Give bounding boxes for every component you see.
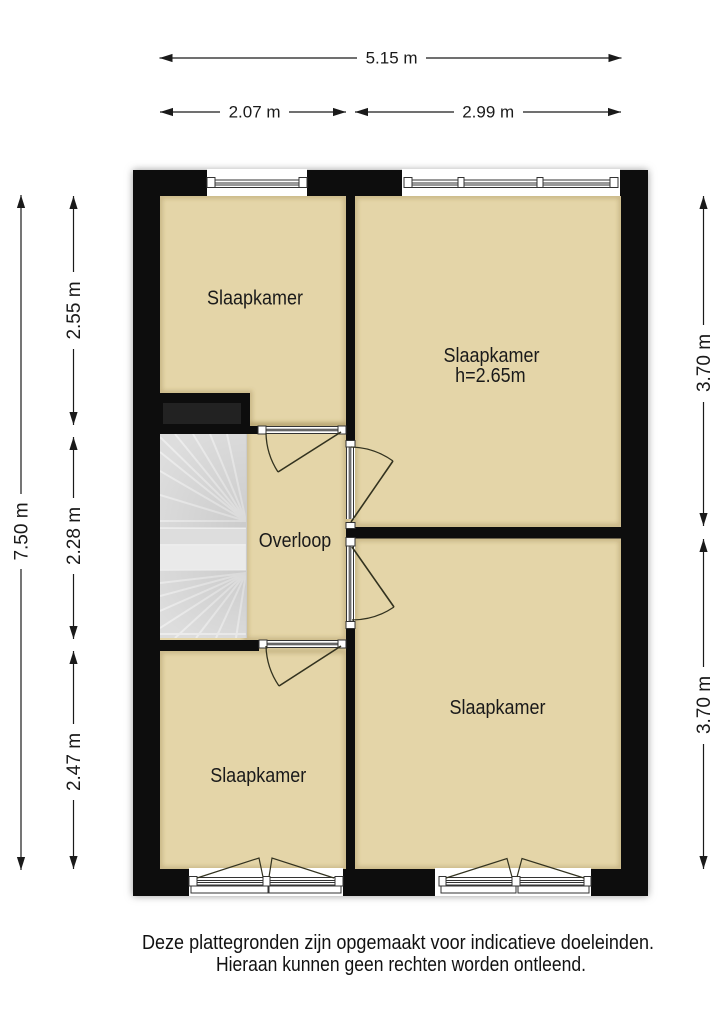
svg-text:Deze plattegronden zijn opgema: Deze plattegronden zijn opgemaakt voor i… [142, 932, 654, 954]
svg-text:3.70 m: 3.70 m [694, 334, 715, 392]
svg-text:5.15 m: 5.15 m [366, 48, 418, 67]
svg-text:Hieraan kunnen geen rechten wo: Hieraan kunnen geen rechten worden ontle… [216, 954, 586, 976]
svg-text:Slaapkamer: Slaapkamer [207, 288, 303, 310]
svg-text:2.28 m: 2.28 m [64, 507, 85, 565]
svg-text:2.99 m: 2.99 m [462, 103, 514, 122]
svg-text:2.07 m: 2.07 m [229, 103, 281, 122]
svg-text:3.70 m: 3.70 m [694, 676, 715, 734]
svg-text:Slaapkamer: Slaapkamer [450, 697, 546, 719]
svg-text:Slaapkamer: Slaapkamer [444, 345, 540, 367]
svg-text:h=2.65m: h=2.65m [455, 365, 526, 387]
svg-text:Overloop: Overloop [259, 530, 332, 552]
svg-text:2.47 m: 2.47 m [64, 733, 85, 791]
svg-text:Slaapkamer: Slaapkamer [210, 765, 306, 787]
svg-text:7.50 m: 7.50 m [12, 502, 33, 560]
svg-text:2.55 m: 2.55 m [64, 281, 85, 339]
